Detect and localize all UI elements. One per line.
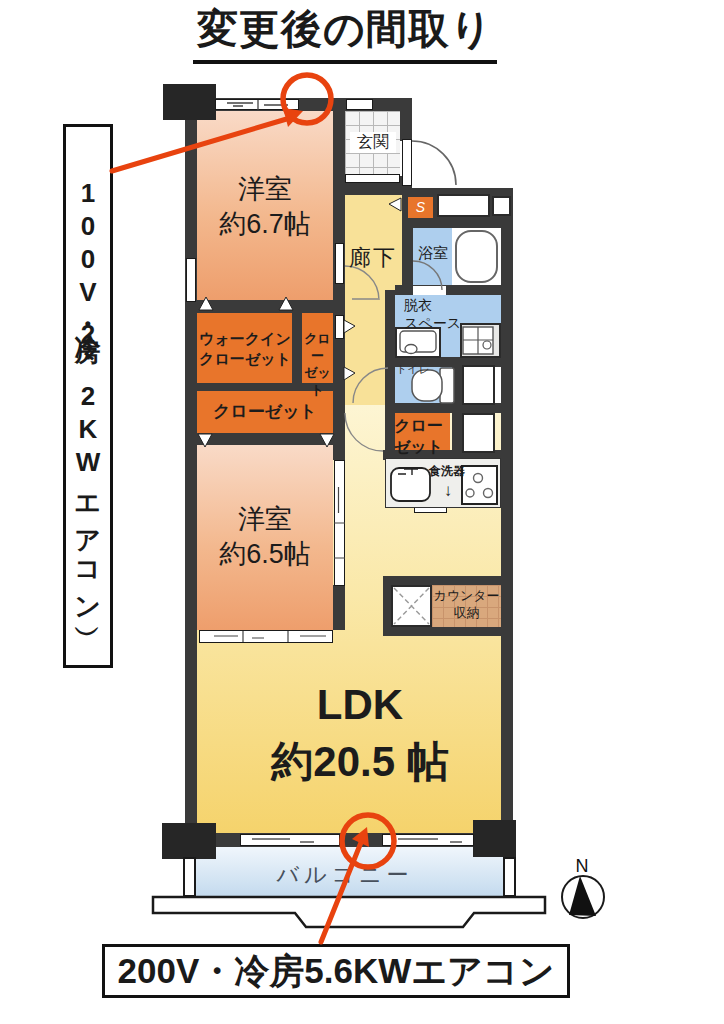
- wall-segment: [185, 98, 197, 835]
- corner-pillar: [163, 84, 216, 120]
- entrance-step: [345, 174, 400, 183]
- compass-circle: [562, 876, 604, 918]
- pipe-shaft: [462, 413, 495, 453]
- entrance-label: 玄関: [350, 132, 396, 153]
- storage-shaft: [492, 196, 511, 216]
- window: [215, 99, 299, 110]
- ldk-label: LDK 約20.5 帖: [240, 677, 480, 790]
- storage-shaft: [437, 194, 490, 217]
- floorplan-page: 変更後の間取り: [0, 0, 724, 1024]
- wall-segment: [383, 627, 501, 636]
- wall-segment: [395, 285, 501, 295]
- page-title: 変更後の間取り: [193, 2, 497, 64]
- wall-segment: [501, 188, 513, 847]
- bedroom1-label: 洋室 約6.7帖: [197, 172, 333, 242]
- left-callout-box: 100V・冷房2．2KWエアコン）: [63, 124, 113, 668]
- room-hallway-lower: [345, 290, 385, 405]
- wall-segment: [333, 585, 345, 630]
- dressing-label: 脱衣 スペース: [398, 296, 476, 332]
- sliding-door: [199, 630, 333, 643]
- compass-needle: [569, 876, 596, 916]
- wall-segment: [402, 228, 413, 290]
- closet-wide-label: クローゼット: [197, 401, 333, 423]
- compass-north-label: N: [576, 856, 589, 876]
- wall-segment: [452, 365, 462, 453]
- bottom-callout-text: 200V・冷房5.6KWエアコン: [118, 948, 555, 995]
- walk-in-closet-label: ウォークイン クローゼット: [199, 329, 291, 368]
- left-callout-text: 100V・冷房2．2KWエアコン）: [75, 178, 101, 614]
- window: [186, 258, 196, 302]
- entry-door-leaf: [402, 139, 412, 186]
- entry-door-arc: [412, 141, 456, 185]
- balcony-label: バルコニー: [250, 861, 440, 890]
- corner-pillar: [473, 820, 516, 857]
- closet-right-label: クロー ゼット: [387, 416, 450, 458]
- sliding-door: [334, 460, 345, 586]
- balcony-platform: [153, 897, 545, 927]
- corner-pillar: [162, 823, 216, 859]
- counter-storage-label: カウンター 収納: [432, 588, 501, 622]
- closet-small-label: クロー ゼット: [300, 331, 335, 399]
- window: [346, 99, 373, 110]
- page-title-wrap: 変更後の間取り: [150, 2, 540, 64]
- hallway-label: 廊下: [343, 244, 403, 273]
- pipe-shaft: [462, 365, 495, 405]
- wall-segment: [197, 433, 333, 445]
- window: [240, 834, 340, 846]
- closet-opening: [335, 315, 344, 339]
- shoe-box-label: S: [408, 198, 433, 216]
- bathroom-label: 浴室: [414, 243, 452, 263]
- toilet-label: トイレ: [396, 362, 438, 376]
- refrigerator-space: [391, 585, 432, 627]
- wall-segment: [400, 111, 412, 141]
- dishwasher-label: 食洗器: [427, 464, 467, 480]
- bath-door-gap: [413, 286, 446, 295]
- bathtub-zone: [452, 228, 501, 285]
- window: [382, 834, 474, 846]
- bedroom2-label: 洋室 約6.5帖: [197, 502, 333, 572]
- balcony-rail: [503, 857, 516, 897]
- wall-segment: [383, 576, 501, 585]
- bottom-callout-box: 200V・冷房5.6KWエアコン: [102, 944, 570, 998]
- dishwasher-arrow: ↓: [438, 480, 458, 502]
- balcony-rail: [183, 857, 196, 897]
- room-hallway-upper: [345, 195, 402, 290]
- wall-segment: [197, 300, 333, 313]
- wall-segment: [383, 576, 391, 636]
